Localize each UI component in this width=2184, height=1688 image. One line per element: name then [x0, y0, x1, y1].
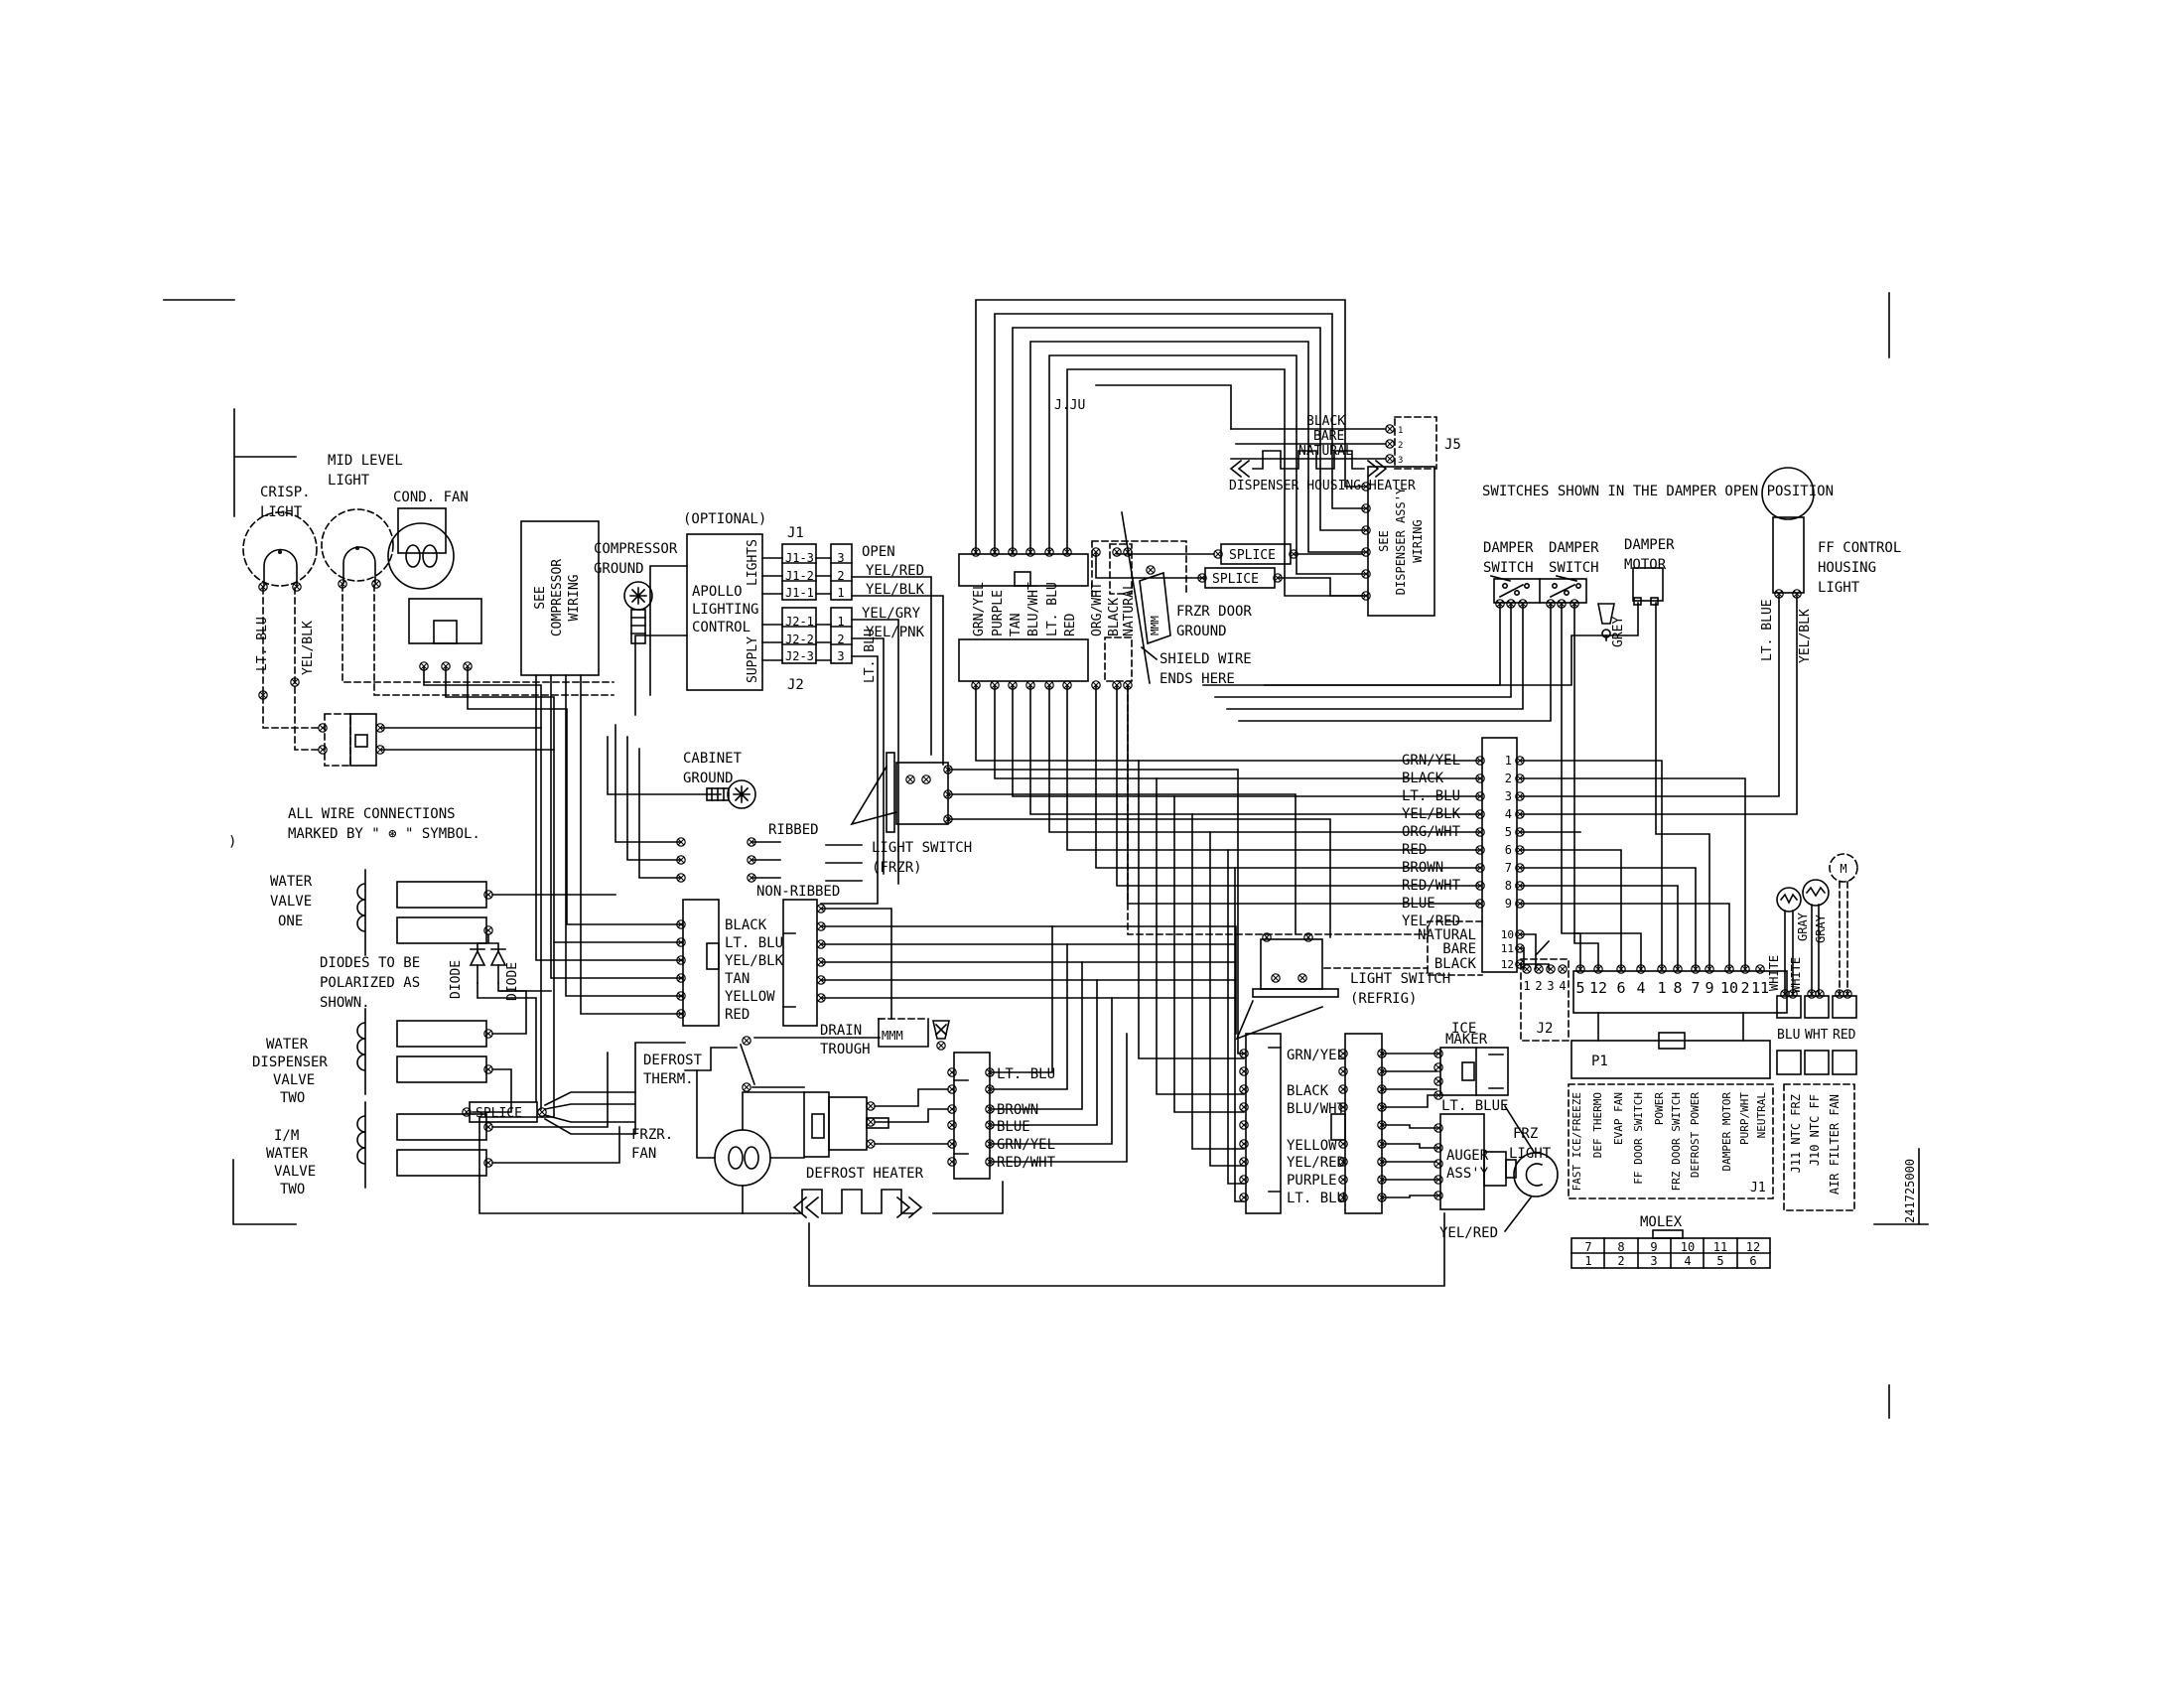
refrigerator-wiring-diagram: CRISP. LIGHT MID LEVEL LIGHT COND. FAN L… — [0, 0, 2184, 1688]
main-num: 11 — [1501, 942, 1514, 955]
j1-pin-num: 2 — [837, 569, 844, 583]
splice-label: SPLICE — [1212, 572, 1259, 587]
ff-control-label: HOUSING — [1818, 560, 1876, 576]
water-valve-one-label: ONE — [278, 914, 303, 929]
j1-pin-num: 1 — [837, 586, 844, 600]
long-num: 10 — [1720, 979, 1738, 997]
optional-label: (OPTIONAL) — [683, 511, 766, 527]
main-num: 7 — [1505, 861, 1512, 875]
apollo-label: APOLLO — [692, 584, 743, 600]
wire-label-yel-gry: YEL/GRY — [862, 606, 921, 622]
damper-switch-label: DAMPER — [1483, 540, 1534, 556]
drain-trough-label: TROUGH — [820, 1042, 871, 1057]
j5-num: 3 — [1398, 456, 1403, 466]
long-num: 8 — [1673, 979, 1682, 997]
j2-conn-num: 1 — [1523, 979, 1530, 993]
molex-num: 3 — [1650, 1254, 1657, 1268]
main-num: 8 — [1505, 879, 1512, 893]
wire-label: NATURAL — [1122, 582, 1137, 636]
wire-label-white: WHITE — [1789, 957, 1803, 993]
all-wire-note: MARKED BY " ⊛ " SYMBOL. — [288, 826, 480, 842]
compressor-ground-label: GROUND — [594, 561, 644, 577]
wire-label-red: RED — [1833, 1028, 1856, 1043]
part-number: 241725000 — [1903, 1159, 1917, 1223]
frzr-fan-label: FAN — [631, 1146, 656, 1162]
molex-num: 9 — [1650, 1240, 1657, 1254]
wire-label: YEL/RED — [1287, 1155, 1345, 1171]
shield-wire-label: ENDS HERE — [1160, 671, 1235, 687]
damper-motor-label: MOTOR — [1624, 557, 1667, 573]
ff-control-label: FF CONTROL — [1818, 540, 1901, 556]
light-switch-refrig-label: LIGHT SWITCH — [1350, 971, 1450, 987]
auger-label: AUGER — [1446, 1148, 1489, 1164]
compressor-box-label: SEE — [533, 586, 548, 609]
water-dispenser-valve-label: DISPENSER — [252, 1055, 328, 1070]
compressor-box-label: COMPRESSOR — [550, 559, 565, 636]
damper-motor-label: DAMPER — [1624, 537, 1675, 553]
j1-row: J1-2 — [785, 569, 814, 583]
cabinet-ground-label: GROUND — [683, 771, 734, 786]
molex-num: 5 — [1716, 1254, 1723, 1268]
j1-conn-label: FRZ DOOR SWITCH — [1670, 1092, 1683, 1191]
wire-label: YELLOW — [1287, 1138, 1337, 1154]
auger-label: ASS'Y — [1446, 1166, 1489, 1182]
j2-conn-num: 2 — [1535, 979, 1542, 993]
apollo-label: CONTROL — [692, 620, 751, 635]
main-wire: ORG/WHT — [1402, 824, 1461, 840]
j1-conn-label: DAMPER MOTOR — [1720, 1092, 1733, 1172]
frzr-door-ground-label: GROUND — [1176, 624, 1227, 639]
molex-num: 12 — [1746, 1240, 1760, 1254]
see-dispenser-label: DISPENSER ASS'Y — [1394, 487, 1408, 595]
wire-label: TAN — [1009, 614, 1024, 636]
wire-label: LT. BLU — [1287, 1191, 1345, 1206]
main-wire: LT. BLU — [1402, 788, 1460, 804]
j1-conn-label: POWER — [1653, 1092, 1666, 1125]
long-num: 4 — [1636, 979, 1645, 997]
supply-label: SUPPLY — [746, 636, 760, 683]
shield-wire-label: SHIELD WIRE — [1160, 651, 1252, 667]
compressor-box-label: WIRING — [567, 574, 582, 621]
clipped-text: J.JU — [1054, 398, 1085, 413]
main-wire: BLUE — [1402, 896, 1435, 912]
ice-maker-label: MAKER — [1445, 1032, 1488, 1048]
wire-label-open: OPEN — [862, 544, 895, 560]
wire-label: LT. BLU — [1045, 582, 1060, 636]
main-wire: GRN/YEL — [1402, 753, 1460, 769]
diodes-note: DIODES TO BE — [320, 955, 420, 971]
molex-num: 2 — [1617, 1254, 1624, 1268]
j2-row: J2-1 — [785, 615, 814, 629]
damper-switch-label: SWITCH — [1549, 560, 1599, 576]
j2-pin-num: 2 — [837, 633, 844, 646]
im-water-valve-label: WATER — [266, 1146, 309, 1162]
molex-num: 8 — [1617, 1240, 1624, 1254]
light-switch-frzr-label: LIGHT SWITCH — [872, 840, 972, 856]
j1-pin-num: 3 — [837, 551, 844, 565]
j2-row: J2-3 — [785, 649, 814, 663]
ntc-label: J11 NTC FRZ — [1789, 1094, 1803, 1173]
j1-row: J1-3 — [785, 551, 814, 565]
j2-title: J2 — [787, 677, 804, 693]
diodes-note: POLARIZED AS — [320, 975, 420, 991]
main-wire: BROWN — [1402, 860, 1443, 876]
main-num: 4 — [1505, 807, 1512, 821]
motor-m-label: M — [1840, 862, 1846, 876]
wire-label: BLU/WHT — [1026, 582, 1041, 636]
water-dispenser-valve-label: TWO — [280, 1090, 305, 1106]
lights-label: LIGHTS — [746, 539, 760, 586]
wire-label-white: WHITE — [1767, 955, 1781, 991]
cabinet-ground-label: CABINET — [683, 751, 743, 767]
damper-switch-label: DAMPER — [1549, 540, 1599, 556]
j1-row: J1-1 — [785, 586, 814, 600]
wire-label-grey: GREY — [1611, 617, 1626, 647]
j5-num: 2 — [1398, 441, 1403, 451]
connection-pins — [259, 425, 1851, 1201]
crisp-light-label: LIGHT — [260, 504, 303, 520]
j2-pin-num: 1 — [837, 615, 844, 629]
all-wire-note: ALL WIRE CONNECTIONS — [288, 806, 456, 822]
main-num: 10 — [1501, 928, 1514, 941]
labels: CRISP. LIGHT MID LEVEL LIGHT COND. FAN L… — [228, 398, 1917, 1268]
ribbed-label: RIBBED — [768, 822, 819, 838]
water-valve-one-label: WATER — [270, 874, 313, 890]
see-dispenser-label: WIRING — [1411, 519, 1425, 562]
splice-label: SPLICE — [476, 1106, 522, 1121]
non-ribbed-label: NON-RIBBED — [756, 884, 840, 900]
main-wire: YEL/BLK — [1402, 806, 1461, 822]
wire-label: PURPLE — [991, 590, 1006, 636]
j1-label: J1 — [1750, 1181, 1766, 1196]
water-dispenser-valve-label: WATER — [266, 1037, 309, 1053]
see-dispenser-label: SEE — [1377, 530, 1391, 552]
j1-conn-label: DEF THERMO — [1591, 1092, 1604, 1158]
im-water-valve-label: TWO — [280, 1182, 305, 1197]
molex-num: 10 — [1681, 1240, 1695, 1254]
wire-label-blu: BLU — [1777, 1028, 1800, 1043]
wire-label-gray: GRAY — [1814, 914, 1828, 943]
wire-label-yel-blk: YEL/BLK — [301, 621, 316, 675]
light-switch-refrig-label: (REFRIG) — [1350, 991, 1417, 1007]
wire-label-lt-blue: LT. BLUE — [1760, 599, 1775, 661]
main-num: 9 — [1505, 897, 1512, 911]
long-num: 2 — [1740, 979, 1749, 997]
defrost-therm-label: DEFROST — [643, 1053, 703, 1068]
main-dashed-wire: BARE — [1442, 941, 1476, 957]
mmm-label: MMM — [882, 1029, 903, 1043]
damper-switch-label: SWITCH — [1483, 560, 1534, 576]
j2-conn-title: J2 — [1537, 1021, 1554, 1037]
wire-label-lt-blue: LT. BLUE — [1441, 1098, 1508, 1114]
wire-label: BLACK — [1287, 1083, 1329, 1099]
wire-label: BLACK — [725, 917, 767, 933]
main-wire: RED/WHT — [1402, 878, 1461, 894]
j5-wire: BARE — [1313, 429, 1344, 444]
wire-label: LT. BLU — [997, 1066, 1055, 1082]
defrost-therm-label: THERM. — [643, 1071, 694, 1087]
im-water-valve-label: I/M — [274, 1128, 299, 1144]
mmm-label: MMM — [1149, 616, 1161, 635]
wire-label-gray: GRAY — [1796, 912, 1810, 941]
main-dashed-wire: BLACK — [1434, 956, 1477, 972]
j5-wire: NATURAL — [1298, 444, 1353, 459]
wire-label-yel-blk: YEL/BLK — [1798, 609, 1813, 663]
diodes-note: SHOWN. — [320, 995, 370, 1011]
molex-num: 7 — [1584, 1240, 1591, 1254]
main-num: 1 — [1505, 754, 1512, 768]
long-num: 6 — [1616, 979, 1625, 997]
molex-num: 1 — [1584, 1254, 1591, 1268]
switches-note: SWITCHES SHOWN IN THE DAMPER OPEN POSITI… — [1482, 484, 1834, 499]
wire-label: GRN/YEL — [972, 582, 987, 636]
main-num: 6 — [1505, 843, 1512, 857]
wire-label: BLUE — [997, 1119, 1030, 1135]
long-num: 5 — [1575, 979, 1584, 997]
molex-num: 4 — [1684, 1254, 1691, 1268]
j1-conn-label: FF DOOR SWITCH — [1632, 1092, 1645, 1185]
mid-level-light-label: MID LEVEL — [328, 453, 403, 469]
j1-title: J1 — [787, 525, 804, 541]
wire-label: RED/WHT — [997, 1155, 1056, 1171]
molex-title: MOLEX — [1640, 1214, 1683, 1230]
water-dispenser-valve-label: VALVE — [273, 1072, 315, 1088]
wire-label-lt-blu: LT. BLU — [863, 629, 878, 683]
long-num: 7 — [1691, 979, 1700, 997]
wire-label-wht: WHT — [1805, 1028, 1829, 1043]
wire-label: RED — [725, 1007, 750, 1023]
main-num: 12 — [1501, 958, 1514, 971]
crisp-light-label: CRISP. — [260, 485, 311, 500]
dispenser-housing-heater-label: DISPENSER HOUSING HEATER — [1229, 479, 1416, 493]
j5-title: J5 — [1444, 437, 1461, 453]
j1-conn-label: DEFROST POWER — [1689, 1092, 1702, 1178]
ntc-label: AIR FILTER FAN — [1828, 1094, 1842, 1195]
main-wire: RED — [1402, 842, 1427, 858]
ntc-label: J10 NTC FF — [1808, 1094, 1822, 1166]
j1-conn-label: EVAP FAN — [1612, 1092, 1625, 1145]
long-num: 12 — [1589, 979, 1607, 997]
wire-label-yel-blk: YEL/BLK — [866, 582, 925, 598]
main-num: 2 — [1505, 772, 1512, 785]
long-num: 9 — [1705, 979, 1713, 997]
wire-label: BLACK — [1107, 598, 1122, 636]
molex-num: 6 — [1749, 1254, 1756, 1268]
drain-trough-label: DRAIN — [820, 1023, 862, 1039]
wire-label: TAN — [725, 971, 750, 987]
water-valve-one-label: VALVE — [270, 894, 312, 910]
j1-conn-label: NEUTRAL — [1755, 1092, 1768, 1139]
schematic-page: CRISP. LIGHT MID LEVEL LIGHT COND. FAN L… — [0, 0, 2184, 1688]
frzr-door-ground-label: FRZR DOOR — [1176, 604, 1252, 620]
main-num: 3 — [1505, 789, 1512, 803]
main-wire: BLACK — [1402, 771, 1444, 786]
frz-light-label: LIGHT — [1509, 1146, 1552, 1162]
splice-label: SPLICE — [1229, 548, 1276, 563]
main-num: 5 — [1505, 825, 1512, 839]
wire-label: GRN/YEL — [997, 1137, 1055, 1153]
j2-pin-num: 3 — [837, 649, 844, 663]
frzr-fan-label: FRZR. — [631, 1127, 673, 1143]
molex-num: 11 — [1713, 1240, 1727, 1254]
wire-label: LT. BLU — [725, 935, 783, 951]
light-switch-frzr-label: (FRZR) — [872, 860, 922, 876]
diode-label: DIODE — [505, 962, 520, 1001]
wire-label: BROWN — [997, 1102, 1038, 1118]
long-num: 1 — [1657, 979, 1666, 997]
diode-label: DIODE — [449, 960, 464, 999]
wire-label: ORG/WHT — [1090, 582, 1105, 636]
wire-label-yel-red: YEL/RED — [1439, 1225, 1498, 1241]
defrost-heater-label: DEFROST HEATER — [806, 1166, 924, 1182]
compressor-ground-label: COMPRESSOR — [594, 541, 678, 557]
stray-paren: ) — [228, 834, 236, 850]
wire-label: YELLOW — [725, 989, 775, 1005]
j1-conn-label: PURP/WHT — [1738, 1092, 1751, 1145]
wire-label: RED — [1063, 613, 1078, 636]
wire-label-lt-blu: LT. BLU — [255, 617, 270, 671]
wire-label: PURPLE — [1287, 1173, 1337, 1189]
cond-fan-label: COND. FAN — [393, 490, 469, 505]
ff-control-label: LIGHT — [1818, 580, 1860, 596]
j5-wire: BLACK — [1306, 414, 1345, 429]
im-water-valve-label: VALVE — [274, 1164, 316, 1180]
j2-conn-num: 4 — [1559, 979, 1566, 993]
j1-conn-label: FAST ICE/FREEZE — [1570, 1092, 1583, 1191]
j5-num: 1 — [1398, 426, 1403, 436]
j2-row: J2-2 — [785, 633, 814, 646]
mid-level-light-label: LIGHT — [328, 473, 370, 489]
apollo-label: LIGHTING — [692, 602, 758, 618]
wires-solid — [164, 293, 1928, 1418]
frz-light-label: FRZ — [1513, 1126, 1538, 1142]
j2-conn-num: 3 — [1547, 979, 1554, 993]
wire-label: YEL/BLK — [725, 953, 784, 969]
wire-label-yel-red: YEL/RED — [866, 563, 924, 579]
wire-label: GRN/YEL — [1287, 1048, 1345, 1063]
wire-label: BLU/WHT — [1287, 1101, 1346, 1117]
p1-title: P1 — [1591, 1054, 1608, 1069]
